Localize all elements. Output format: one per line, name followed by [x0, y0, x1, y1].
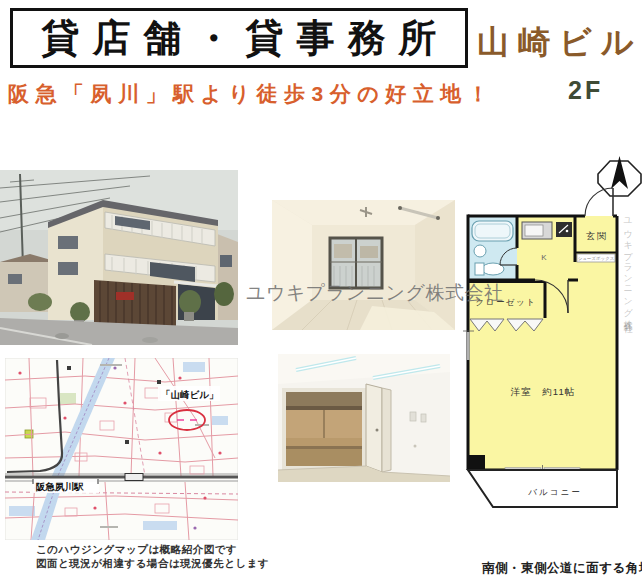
area-map: 「山崎ビル」 阪急夙川駅 — [5, 358, 238, 540]
map-disclaimer-line2: 図面と現況が相違する場合は現況優先とします — [36, 556, 269, 570]
compass-north-icon — [598, 156, 641, 196]
company-watermark-vertical: ユウキプランニング株式会社 — [621, 212, 634, 362]
title-box: 貸店舗・貸事務所 — [10, 8, 468, 68]
fence-sign — [116, 292, 134, 300]
floor-label: 2F — [568, 76, 603, 105]
balcony: バルコニー — [468, 470, 617, 507]
map-disclaimer-line1: このハウジングマップは概略紹介図です — [36, 542, 269, 556]
main-room-label: 洋室 約11帖 — [510, 386, 575, 397]
interior-photo-living — [272, 200, 455, 330]
open-door — [366, 384, 391, 472]
exterior-photo — [0, 170, 238, 345]
pillar — [468, 455, 485, 470]
switch-plate — [410, 412, 416, 421]
map-disclaimer: このハウジングマップは概略紹介図です 図面と現況が相違する場合は現況優先とします — [36, 542, 269, 570]
kitchen-counter — [522, 222, 552, 239]
entrance-label: 玄関 — [586, 231, 608, 241]
side-window — [467, 332, 470, 360]
map-building-label: 「山崎ビル」 — [161, 389, 218, 400]
balcony-label: バルコニー — [527, 487, 581, 497]
bathroom — [468, 216, 517, 280]
shoebox-label: シューズボックス — [578, 256, 615, 261]
location-note: 南側・東側公道に面する角地 — [482, 560, 642, 577]
interior-photo-closet — [278, 354, 450, 482]
rental-flyer: 貸店舗・貸事務所 山崎ビル 阪急「夙川」駅より徒歩3分の好立地！ 2F — [0, 0, 642, 585]
floor-plan: K 玄関 シューズボックス クローゼット 洋室 約11帖 — [455, 145, 642, 517]
stove-icon — [556, 222, 572, 237]
closet-open — [282, 388, 368, 470]
kitchen-label: K — [541, 253, 547, 262]
catchphrase: 阪急「夙川」駅より徒歩3分の好立地！ — [8, 80, 495, 108]
map-station-label: 阪急夙川駅 — [36, 481, 84, 492]
map-station-marker: 阪急夙川駅 — [33, 479, 99, 493]
shoebox: シューズボックス — [577, 254, 615, 262]
page-title: 貸店舗・貸事務所 — [29, 13, 450, 64]
company-watermark: ユウキプランニング株式会社 — [246, 280, 506, 306]
building-name: 山崎ビル — [477, 21, 642, 65]
sink-icon — [474, 245, 486, 257]
station-marker — [125, 474, 143, 481]
